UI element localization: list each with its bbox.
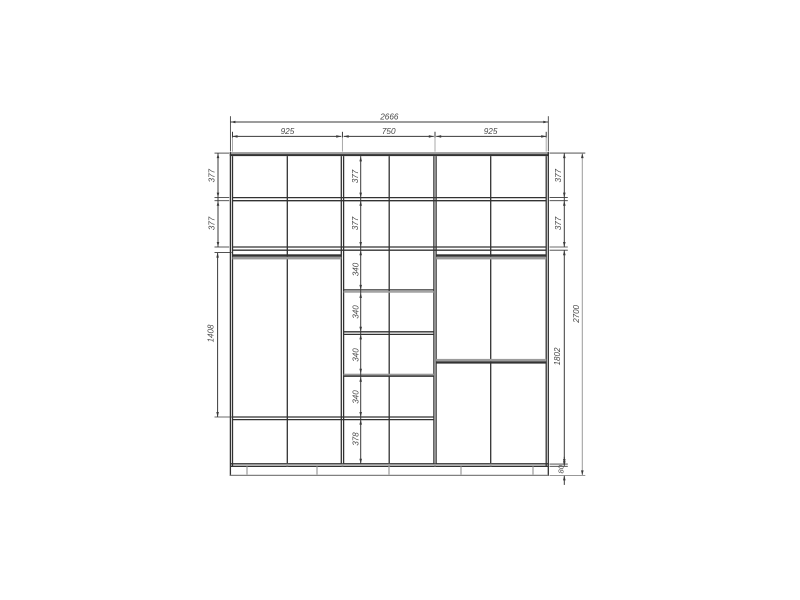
svg-text:925: 925 [281,127,295,136]
svg-text:340: 340 [351,262,360,276]
svg-text:340: 340 [351,348,360,362]
svg-text:1408: 1408 [207,324,216,342]
svg-text:377: 377 [351,169,360,183]
svg-text:377: 377 [351,216,360,230]
svg-text:925: 925 [484,127,498,136]
svg-text:1802: 1802 [553,347,562,365]
svg-text:340: 340 [351,390,360,404]
svg-text:378: 378 [351,432,360,446]
svg-text:377: 377 [554,168,563,182]
svg-text:340: 340 [351,305,360,319]
svg-text:2666: 2666 [379,113,399,122]
svg-text:377: 377 [554,216,563,230]
svg-text:750: 750 [382,127,396,136]
svg-text:377: 377 [207,168,216,182]
svg-text:80: 80 [557,464,566,473]
svg-text:2700: 2700 [572,304,581,323]
svg-text:377: 377 [207,216,216,230]
